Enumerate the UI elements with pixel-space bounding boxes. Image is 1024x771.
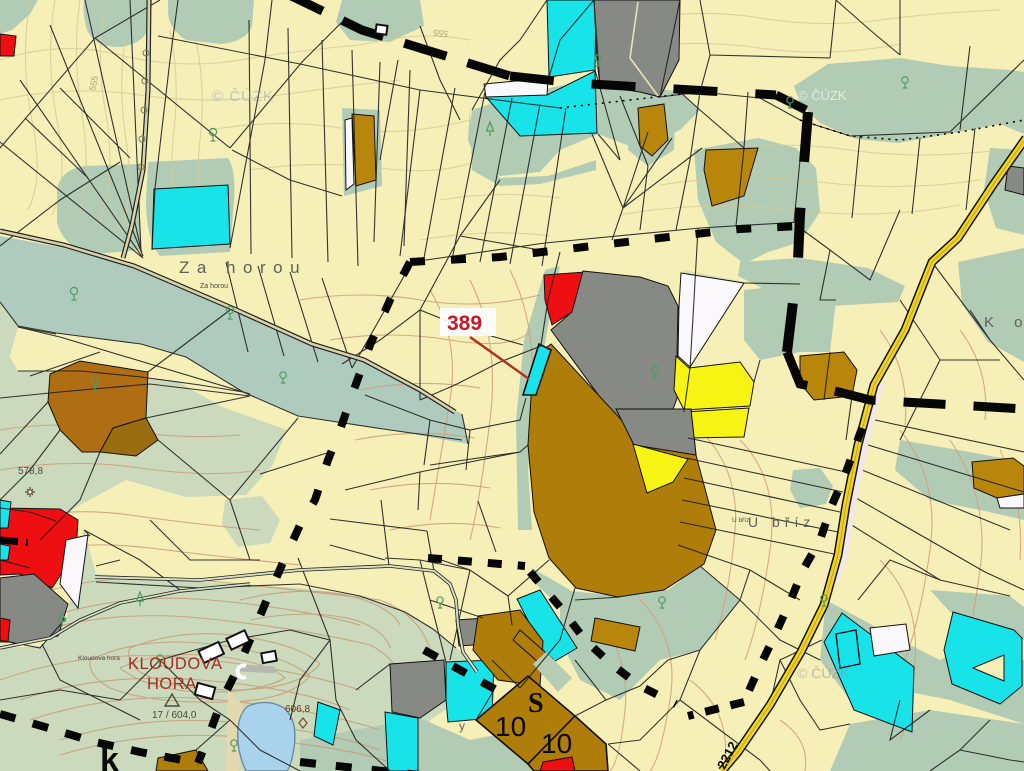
- svg-text:389: 389: [447, 312, 482, 335]
- svg-text:606,8: 606,8: [285, 704, 310, 715]
- svg-text:Kloudova hora: Kloudova hora: [78, 655, 120, 662]
- svg-text:© ČÚZK: © ČÚZK: [212, 88, 274, 105]
- svg-text:10: 10: [541, 728, 572, 759]
- svg-text:578,8: 578,8: [18, 466, 43, 477]
- svg-text:S: S: [528, 688, 544, 719]
- svg-text:KLOUDOVA: KLOUDOVA: [128, 655, 222, 673]
- svg-text:10: 10: [495, 711, 526, 742]
- svg-text:HORA: HORA: [147, 675, 197, 693]
- svg-text:© ČÚZK: © ČÚZK: [797, 665, 850, 681]
- svg-text:U bříz: U bříz: [748, 514, 815, 530]
- svg-text:555: 555: [433, 28, 449, 39]
- svg-text:y: y: [459, 719, 465, 733]
- svg-text:k: k: [100, 741, 119, 771]
- svg-text:© ČÚZK: © ČÚZK: [798, 88, 847, 103]
- svg-text:K o: K o: [984, 314, 1024, 331]
- svg-text:U bříz: U bříz: [732, 517, 749, 524]
- svg-text:17 / 604,0: 17 / 604,0: [152, 710, 197, 721]
- svg-text:Za horou: Za horou: [179, 258, 307, 277]
- svg-text:Za horou: Za horou: [200, 283, 228, 290]
